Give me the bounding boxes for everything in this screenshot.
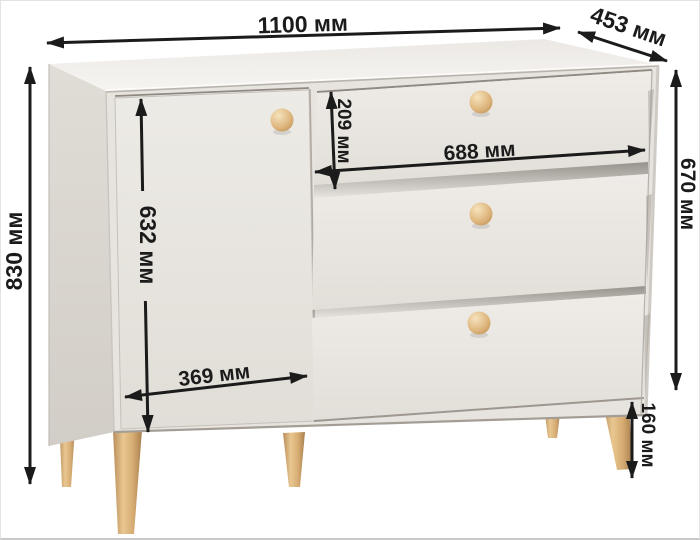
dim-top-drawer-height-label: 209 мм: [333, 98, 354, 163]
drawer-2-knob: [470, 203, 493, 226]
leg: [113, 430, 142, 534]
dim-overall-height-label: 830 мм: [1, 212, 27, 291]
dresser-diagram: 1100 мм 453 мм 830 мм 632 мм 209 мм 688 …: [1, 1, 700, 540]
door-knob: [271, 109, 294, 132]
cabinet-left-side: [49, 64, 114, 446]
drawer-3-knob: [468, 312, 491, 335]
dim-leg-height-label: 160 мм: [637, 402, 658, 467]
drawer-1-knob: [470, 91, 493, 114]
leg: [283, 432, 305, 487]
dim-body-height-label: 670 мм: [676, 158, 699, 230]
dim-door-height-label: 632 мм: [135, 206, 161, 285]
product-dimension-image: 1100 мм 453 мм 830 мм 632 мм 209 мм 688 …: [0, 0, 700, 540]
dim-overall-depth-label: 453 мм: [587, 1, 670, 51]
dim-door-height-arrow-top: [141, 99, 143, 191]
dim-overall-width-label: 1100 мм: [257, 10, 348, 39]
dim-drawer-width-label: 688 мм: [443, 138, 516, 166]
